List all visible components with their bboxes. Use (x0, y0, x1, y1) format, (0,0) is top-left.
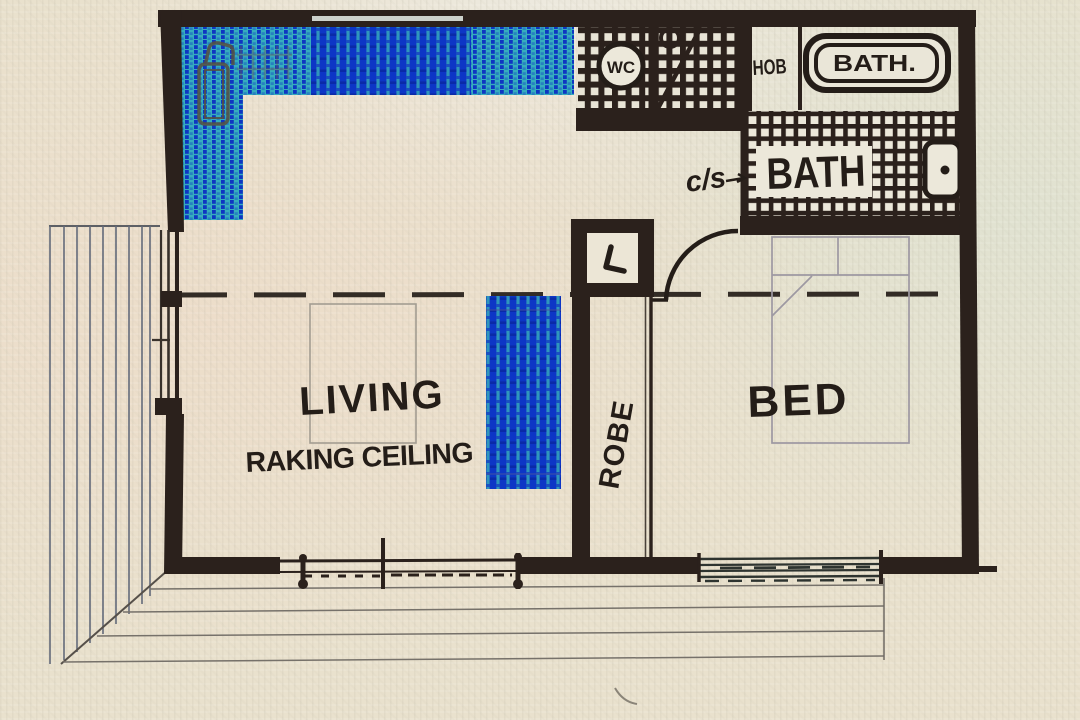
svg-text:HOB: HOB (752, 55, 787, 80)
svg-text:BATH: BATH (766, 147, 867, 199)
svg-text:WC: WC (607, 58, 635, 77)
svg-text:c/s: c/s (684, 162, 728, 199)
svg-text:BATH.: BATH. (833, 50, 916, 76)
svg-text:BED: BED (747, 374, 851, 427)
svg-text:ROBE: ROBE (593, 397, 640, 491)
svg-text:RAKING CEILING: RAKING CEILING (245, 437, 474, 479)
svg-text:LIVING: LIVING (298, 372, 445, 424)
